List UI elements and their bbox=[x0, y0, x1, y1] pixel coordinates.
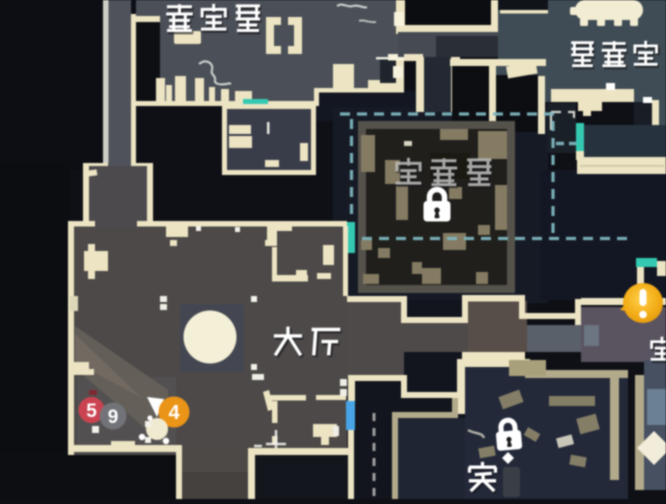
svg-text:9: 9 bbox=[108, 407, 119, 428]
svg-text:5: 5 bbox=[86, 401, 97, 422]
svg-text:4: 4 bbox=[168, 402, 180, 424]
